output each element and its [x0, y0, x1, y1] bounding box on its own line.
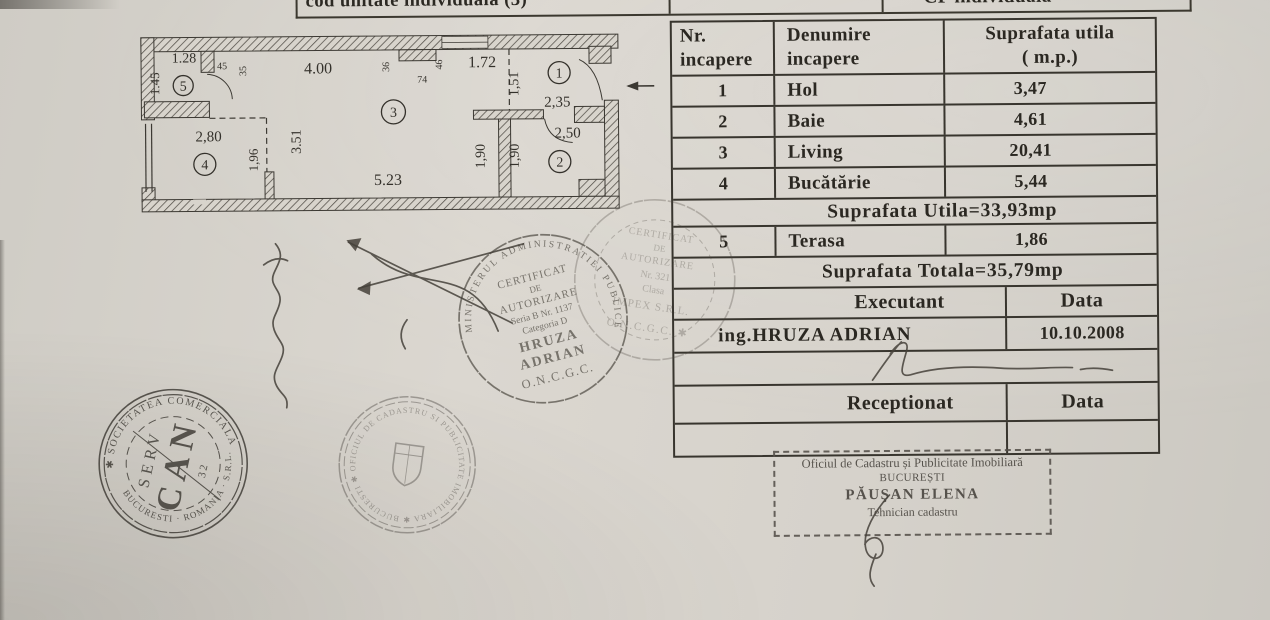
scribble-arrowhead-1 [346, 238, 361, 251]
signature-vertical [272, 244, 287, 408]
round-stamp-certificat-autorizare: MINISTERUL ADMINISTRATIEI PUBLICE CERTIF… [447, 223, 638, 414]
round-stamp-can-serv: ✱ SOCIETATEA COMERCIALA ✱ BUCURESTI · RO… [91, 381, 256, 546]
svg-text:Nr. 321: Nr. 321 [640, 269, 671, 284]
bottom-notch [193, 199, 206, 204]
table-header-row: Nr.incapere Denumireincapere Suprafata u… [672, 19, 1155, 77]
svg-text:DE: DE [653, 242, 667, 254]
svg-text:Categoria D: Categoria D [521, 316, 568, 337]
stamp-ring-text: OFICIUL DE CADASTRU SI PUBLICITATE IMOBI… [338, 396, 476, 534]
stamp-number: 32 [196, 462, 211, 479]
header-strip: cod unitate individuala (3) CF individua… [295, 0, 1191, 19]
plan-dim-label: 2,50 [554, 125, 580, 141]
door-arc-entrance [579, 59, 602, 100]
plan-dim-label: 35 [238, 66, 249, 76]
terasa-row: 5 Terasa 1,86 [673, 224, 1156, 259]
svg-text:MINISTERUL ADMINISTRATIEI PU: MINISTERUL ADMINISTRATIEI PUBLICE [447, 223, 627, 368]
stamp-can-text: CAN [149, 414, 206, 514]
cod-unitate-cell: cod unitate individuala (3) [297, 0, 670, 17]
stamp-serv-text: SERV [135, 428, 165, 490]
room-number-label: 5 [180, 80, 187, 95]
plan-dim-label: 2,35 [544, 95, 570, 111]
plan-dim-label: 4.00 [304, 60, 332, 77]
svg-text:Seria B Nr. 1137: Seria B Nr. 1137 [510, 302, 574, 328]
plan-dim-label: 5.23 [374, 172, 402, 189]
scanned-cadastral-document: cod unitate individuala (3) CF individua… [0, 0, 1270, 620]
plan-dim-label: 1.45 [147, 72, 162, 95]
svg-text:✱ SOCIETATEA COMERCIALA ✱: ✱ SOCIETATEA COMERCIALA ✱ [91, 381, 239, 485]
plan-dim-label: 1,96 [246, 148, 261, 171]
cf-individuala-label: CF individuala [923, 0, 1051, 8]
table-row: 4 Bucătărie 5,44 [673, 166, 1156, 201]
plan-dim-label: 1,90 [508, 144, 523, 169]
svg-text:Clasa: Clasa [641, 283, 665, 297]
scribble-arrowhead-2 [357, 281, 371, 295]
scribble-line-2 [358, 244, 523, 288]
plan-dim-label: 2,80 [195, 129, 221, 145]
executant-name-row: ing.HRUZA ADRIAN 10.10.2008 [674, 317, 1157, 354]
room-number-label: 1 [556, 67, 563, 82]
floor-plan: 1.281.4545354.003674461.721,512,352,501,… [126, 26, 658, 225]
empty-header-cell [670, 0, 883, 14]
svg-text:OFICIUL DE CADASTRU SI PUBLICI: OFICIUL DE CADASTRU SI PUBLICITATE IMOBI… [338, 396, 476, 534]
plan-dim-label: 1,90 [474, 144, 489, 169]
stamp-ring-top-text: ✱ SOCIETATEA COMERCIALA ✱ [91, 381, 239, 485]
plan-dim-label: 46 [434, 59, 445, 69]
round-stamp-ocpi-crest: OFICIUL DE CADASTRU SI PUBLICITATE IMOBI… [331, 388, 484, 541]
room-number-label: 3 [390, 106, 397, 121]
room-number-label: 2 [556, 156, 563, 171]
signature-crossbar [264, 259, 288, 265]
cf-individuala-cell: CF individuala [883, 0, 1189, 12]
ocpi-box-stamp: Oficiul de Cadastru și Publicitate Imobi… [773, 449, 1052, 537]
signature-row [674, 350, 1157, 387]
plan-dim-label: 45 [217, 61, 227, 72]
table-row: 2 Baie 4,61 [672, 104, 1155, 139]
scribble-line-1 [348, 241, 512, 324]
plan-dim-label: 74 [417, 75, 427, 86]
plan-dim-label: 36 [381, 62, 392, 72]
subtotal-row: Suprafata Utila=33,93mp [673, 197, 1156, 228]
svg-text:HRUZA: HRUZA [518, 327, 580, 357]
entrance-arrow-head [626, 81, 638, 90]
receptionat-header-row: Receptionat Data [675, 383, 1158, 425]
scribble-paren [401, 320, 407, 349]
svg-text:DE: DE [528, 282, 543, 295]
svg-text:AUTORIZARE: AUTORIZARE [498, 285, 579, 317]
table-row: 3 Living 20,41 [673, 135, 1156, 170]
svg-text:ADRIAN: ADRIAN [518, 342, 588, 373]
cod-unitate-label: cod unitate individuala (3) [305, 0, 527, 13]
executant-header-row: Executant Data [674, 286, 1157, 321]
svg-text:O.N.C.G.C.: O.N.C.G.C. [520, 360, 596, 392]
room-number-label: 4 [201, 158, 208, 173]
stamp-crest-shield [391, 443, 424, 487]
svg-text:BUCURESTI · ROMANIA · S.R.L.: BUCURESTI · ROMANIA · S.R.L. [118, 450, 247, 537]
door-arc-terasa [207, 74, 232, 99]
plan-dim-label: 1.28 [172, 51, 197, 66]
svg-text:CERTIFICAT: CERTIFICAT [496, 262, 568, 292]
room-area-table: Nr.incapere Denumireincapere Suprafata u… [670, 17, 1160, 458]
plan-dim-label: 1.72 [468, 54, 496, 71]
stamp-ring-bottom-text: BUCURESTI · ROMANIA · S.R.L. [118, 450, 247, 537]
plan-dim-label: 1,51 [507, 72, 522, 97]
left-window [146, 124, 147, 192]
table-row: 1 Hol 3,47 [672, 73, 1155, 108]
total-row: Suprafata Totala=35,79mp [674, 255, 1157, 290]
plan-dim-label: 3.51 [290, 129, 305, 154]
stamp-ring-text: MINISTERUL ADMINISTRATIEI PUBLICE [447, 223, 627, 368]
scribble-hook [372, 253, 499, 332]
